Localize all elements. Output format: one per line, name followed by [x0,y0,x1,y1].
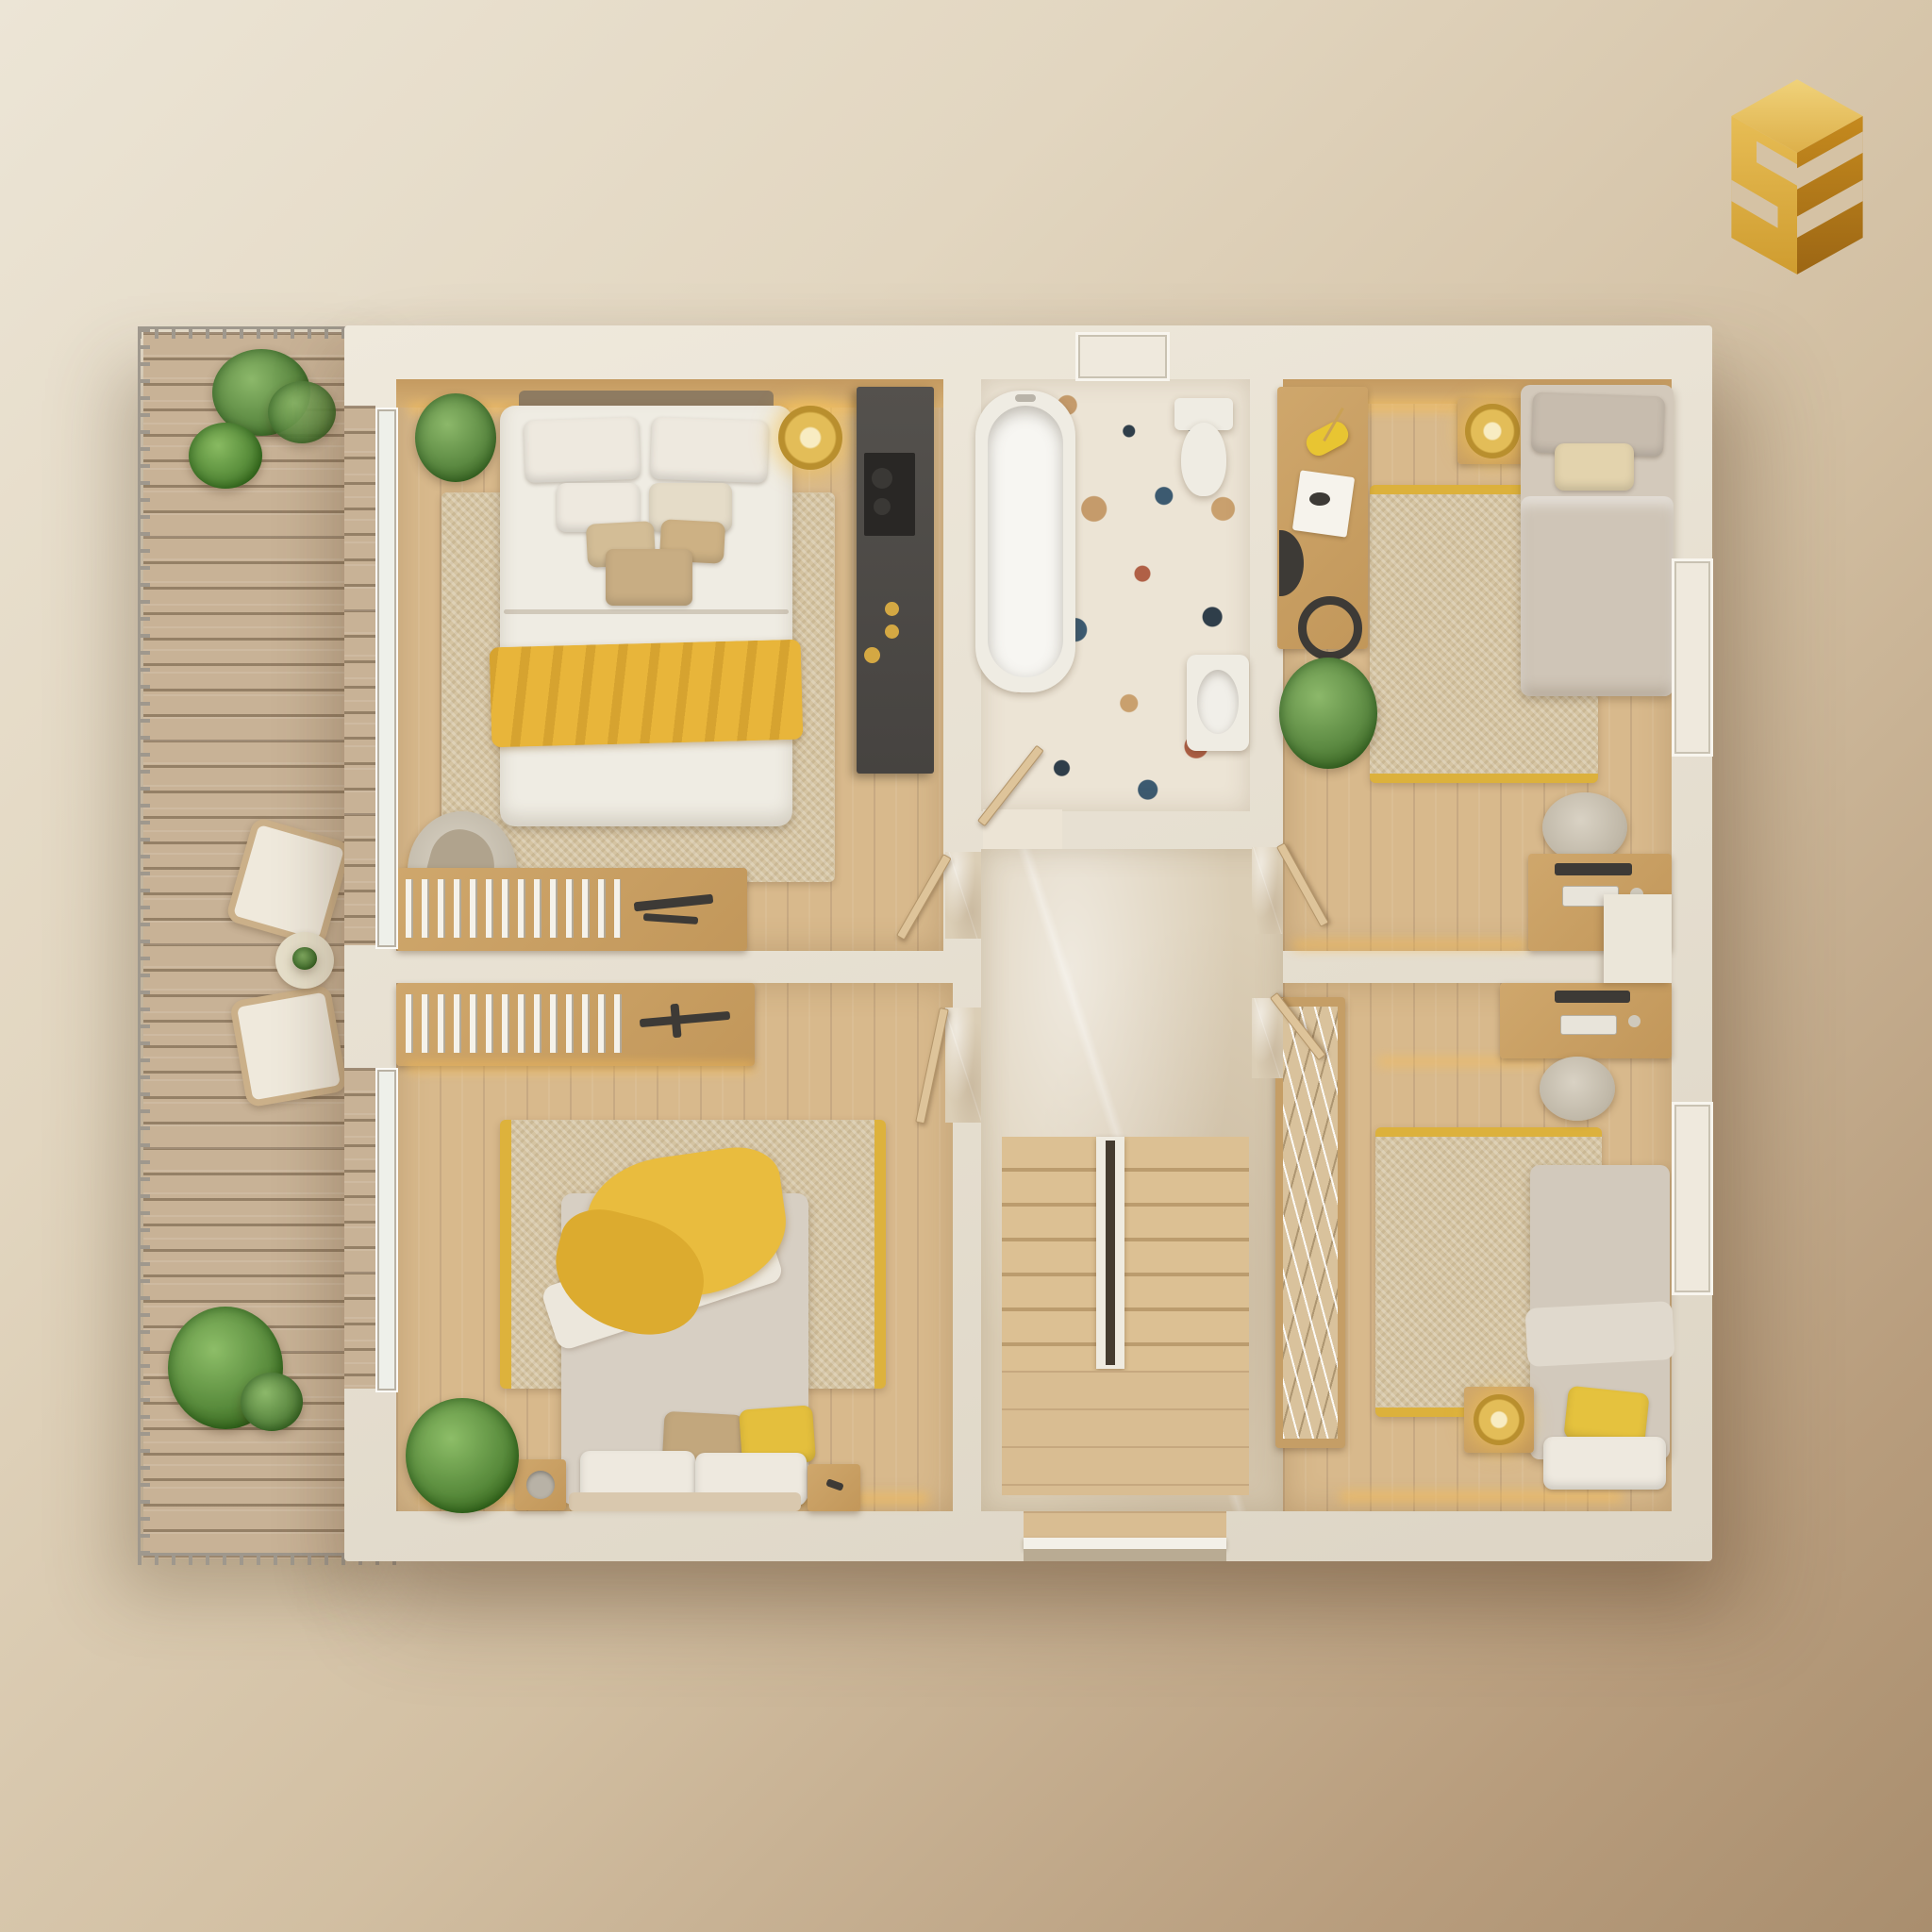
knob [874,498,891,515]
duvet-fold [1524,1301,1674,1367]
fern-icon [406,1398,519,1513]
terrace-plant-icon [268,381,336,443]
plant-icon [415,393,496,482]
knob [872,468,892,489]
wardrobe-dark [857,387,934,774]
headphones-icon [1298,596,1362,660]
bidet-basin [1197,670,1239,734]
desk [1277,387,1368,649]
single-bed [1521,385,1674,696]
airplane-model [640,1011,730,1027]
paper-mark [1309,492,1330,506]
bookshelf [396,868,747,951]
bidet [1187,655,1249,751]
brand-logo-icon [1717,75,1877,278]
cushion [606,549,692,606]
plant-icon [1279,658,1377,769]
gold-knob [864,647,880,663]
table-plant-icon [292,947,317,970]
hanging-clothes [1283,1007,1338,1439]
shelf-decor [643,913,698,924]
desk-lamp-icon [1303,418,1353,460]
pillow [650,417,769,483]
single-bed [1530,1165,1670,1459]
room-hallway [981,849,1283,1511]
master-bed [500,391,792,826]
monitor-icon [1555,863,1632,875]
room-bedroom-bottom-right [1283,983,1672,1511]
pillow [1543,1437,1666,1490]
keyboard-icon [1560,1015,1617,1035]
door-opening [1252,847,1283,934]
terrace-bush-icon [189,423,262,489]
nightstand [808,1464,860,1511]
double-bed [561,1160,808,1511]
closet-volume [1604,894,1672,983]
gold-lamp-icon [1474,1394,1524,1445]
shelf-decor [634,894,714,912]
gold-knob [885,625,899,639]
office-chair [1540,1057,1615,1121]
door-opening [983,809,1062,849]
floorplan-scene [0,0,1932,1932]
nightstand [1464,1387,1534,1453]
desk [1500,983,1672,1058]
duvet-fold [504,609,789,614]
room-master-bedroom [396,379,943,951]
monitor-icon [1555,991,1630,1003]
pendant-lamp-icon [778,406,842,470]
wardrobe-niche [864,453,915,536]
led-strip [406,1064,755,1072]
stair-treads [1002,1137,1249,1371]
window [1672,1102,1713,1295]
headboard [569,1492,801,1511]
monitor-icon [1279,530,1304,596]
terrace-fern-icon [241,1373,303,1431]
window [1672,558,1713,757]
toilet-bowl [1181,423,1226,496]
faucet-icon [1015,394,1036,402]
room-bathroom [981,379,1250,811]
stair-divider [1096,1137,1124,1369]
stair-divider-slot [1106,1141,1115,1365]
window [1075,332,1170,381]
room-bedroom-bottom-left [396,983,953,1511]
duvet [1521,496,1674,696]
nightstand [1457,398,1527,464]
deck-under-glass [344,406,375,945]
led-strip [1340,1492,1623,1501]
stair-opening [1024,1511,1226,1538]
led-strip [1292,941,1528,949]
door-opening [945,852,981,939]
yellow-throw [490,640,804,748]
pillow [524,417,641,483]
bathtub [975,391,1075,692]
step [1024,1549,1226,1561]
room-bedroom-top-right [1283,379,1672,951]
nightstand [515,1459,566,1510]
books [406,994,630,1053]
ring-lamp-icon [1465,404,1520,458]
terrace-railing-left [138,328,150,1562]
led-strip [1377,1058,1547,1065]
toilet [1174,398,1233,500]
bookshelf [396,983,755,1066]
threshold [1024,1538,1226,1549]
pillow-tan [1555,443,1634,491]
books [406,879,621,938]
open-wardrobe [1275,997,1345,1448]
staircase [1002,1137,1249,1495]
stair-landing [1002,1371,1249,1495]
door-opening [945,1008,981,1123]
mug [1628,1015,1641,1027]
office-chair [1542,792,1627,862]
decor [825,1478,844,1491]
glass-door [375,408,398,949]
airplane-wing [670,1004,681,1039]
gold-knob [885,602,899,616]
glass-door [375,1068,398,1392]
wicker-chair [229,984,348,1108]
bathtub-basin [988,406,1063,677]
deck-under-glass [344,1068,375,1389]
tray [526,1471,555,1499]
